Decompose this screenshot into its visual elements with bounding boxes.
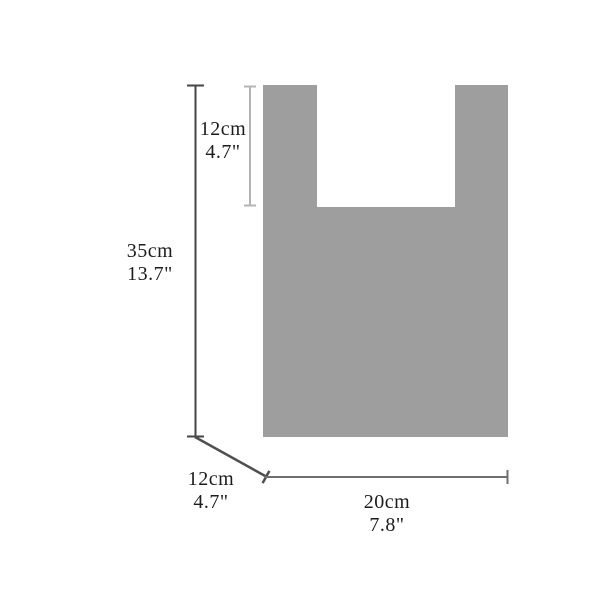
depth-cm: 12cm [151, 468, 271, 491]
width-dimension-line [264, 470, 508, 484]
handle-height-label: 12cm 4.7" [163, 118, 283, 164]
total-height-cm: 35cm [90, 240, 210, 263]
depth-inch: 4.7" [151, 491, 271, 514]
bag-dimension-diagram: 12cm 4.7" 35cm 13.7" 12cm 4.7" 20cm 7.8" [0, 0, 600, 600]
handle-height-cm: 12cm [163, 118, 283, 141]
width-cm: 20cm [327, 491, 447, 514]
diagram-canvas [0, 0, 600, 600]
handle-height-inch: 4.7" [163, 141, 283, 164]
width-inch: 7.8" [327, 514, 447, 537]
total-height-inch: 13.7" [90, 263, 210, 286]
total-height-label: 35cm 13.7" [90, 240, 210, 286]
width-label: 20cm 7.8" [327, 491, 447, 537]
bag-shape [263, 85, 508, 437]
depth-label: 12cm 4.7" [151, 468, 271, 514]
